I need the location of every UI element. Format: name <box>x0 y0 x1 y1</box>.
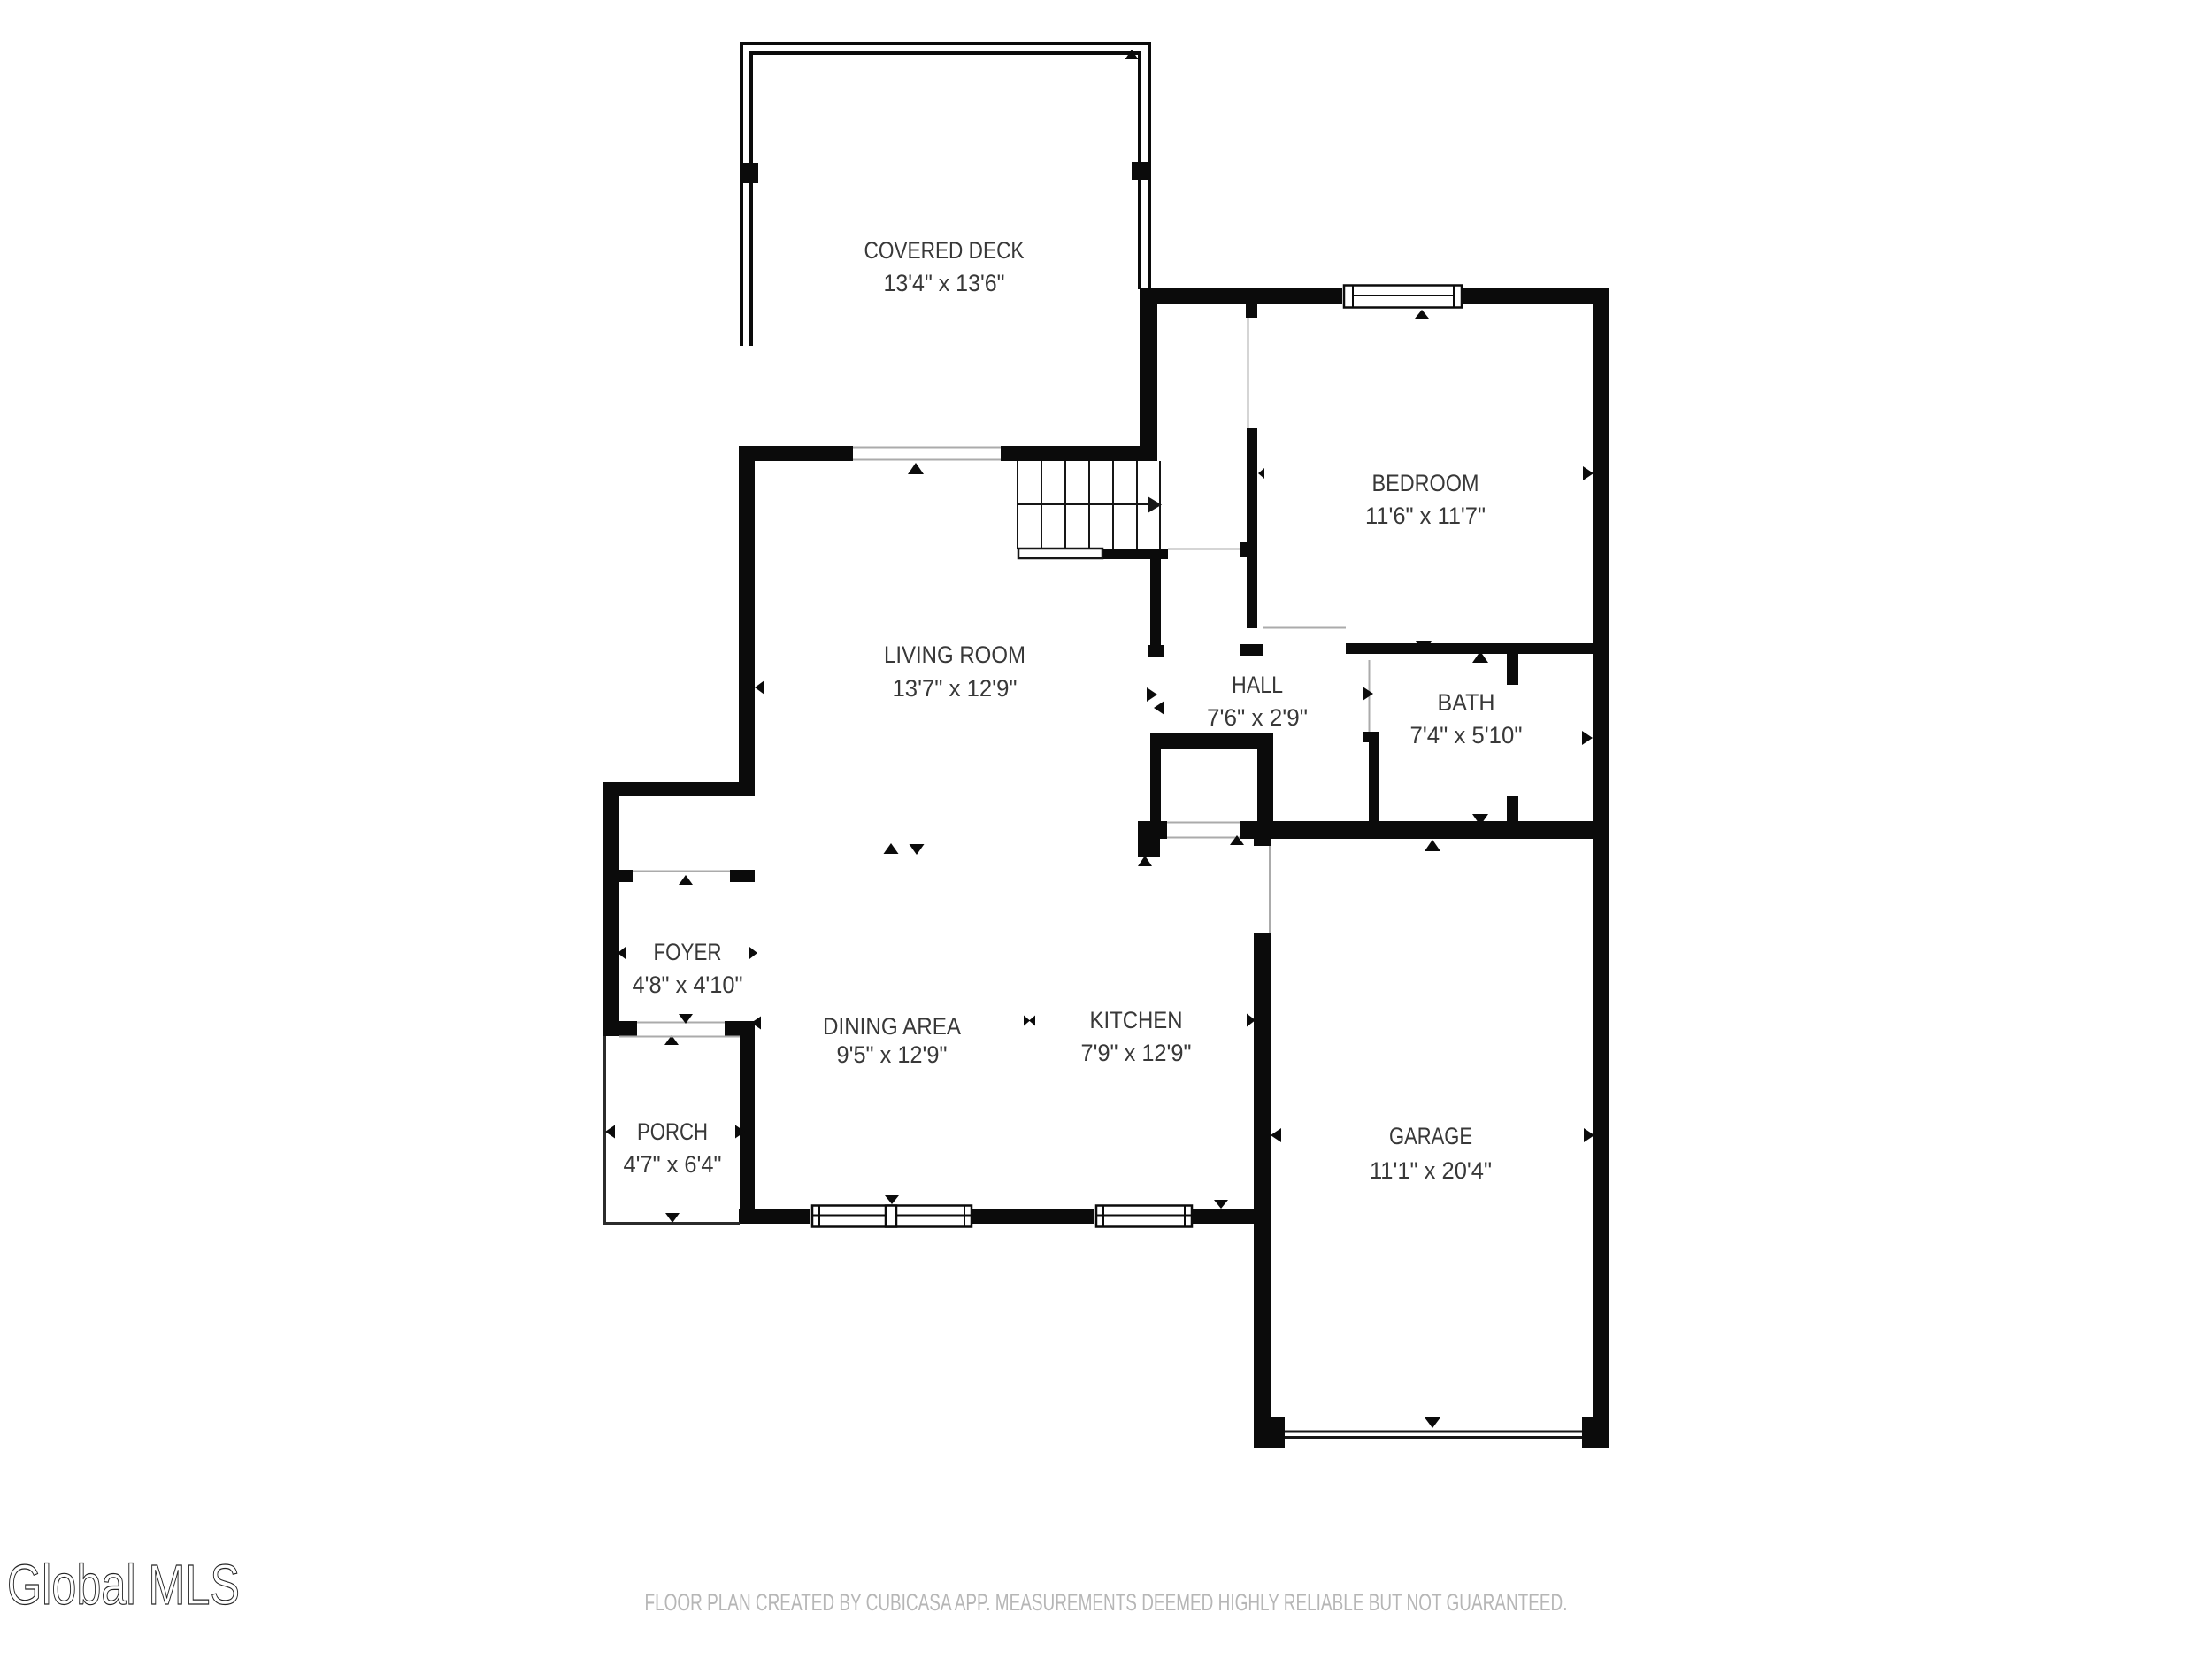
svg-text:BEDROOM: BEDROOM <box>1372 470 1479 496</box>
svg-text:KITCHEN: KITCHEN <box>1090 1007 1183 1033</box>
svg-text:Global MLS: Global MLS <box>7 1553 240 1617</box>
svg-text:13'4" x 13'6": 13'4" x 13'6" <box>884 270 1005 296</box>
svg-text:DINING AREA: DINING AREA <box>823 1013 961 1040</box>
svg-text:7'4" x 5'10": 7'4" x 5'10" <box>1410 722 1523 749</box>
svg-text:BATH: BATH <box>1438 689 1495 716</box>
svg-text:4'7" x 6'4": 4'7" x 6'4" <box>624 1151 722 1178</box>
svg-text:7'6" x 2'9": 7'6" x 2'9" <box>1207 704 1308 731</box>
svg-text:11'1" x 20'4": 11'1" x 20'4" <box>1370 1157 1492 1184</box>
svg-text:11'6" x 11'7": 11'6" x 11'7" <box>1365 503 1486 529</box>
svg-text:FOYER: FOYER <box>654 939 722 965</box>
svg-text:HALL: HALL <box>1232 672 1283 698</box>
svg-text:4'8" x 4'10": 4'8" x 4'10" <box>633 972 743 998</box>
svg-text:9'5" x 12'9": 9'5" x 12'9" <box>837 1041 948 1068</box>
svg-text:FLOOR PLAN CREATED BY CUBICASA: FLOOR PLAN CREATED BY CUBICASA APP. MEAS… <box>645 1589 1568 1616</box>
svg-text:7'9" x 12'9": 7'9" x 12'9" <box>1081 1040 1192 1066</box>
svg-text:PORCH: PORCH <box>637 1118 708 1145</box>
svg-text:13'7" x 12'9": 13'7" x 12'9" <box>893 675 1018 702</box>
svg-text:COVERED DECK: COVERED DECK <box>864 237 1025 264</box>
svg-text:GARAGE: GARAGE <box>1389 1123 1472 1149</box>
svg-text:LIVING ROOM: LIVING ROOM <box>884 641 1025 668</box>
